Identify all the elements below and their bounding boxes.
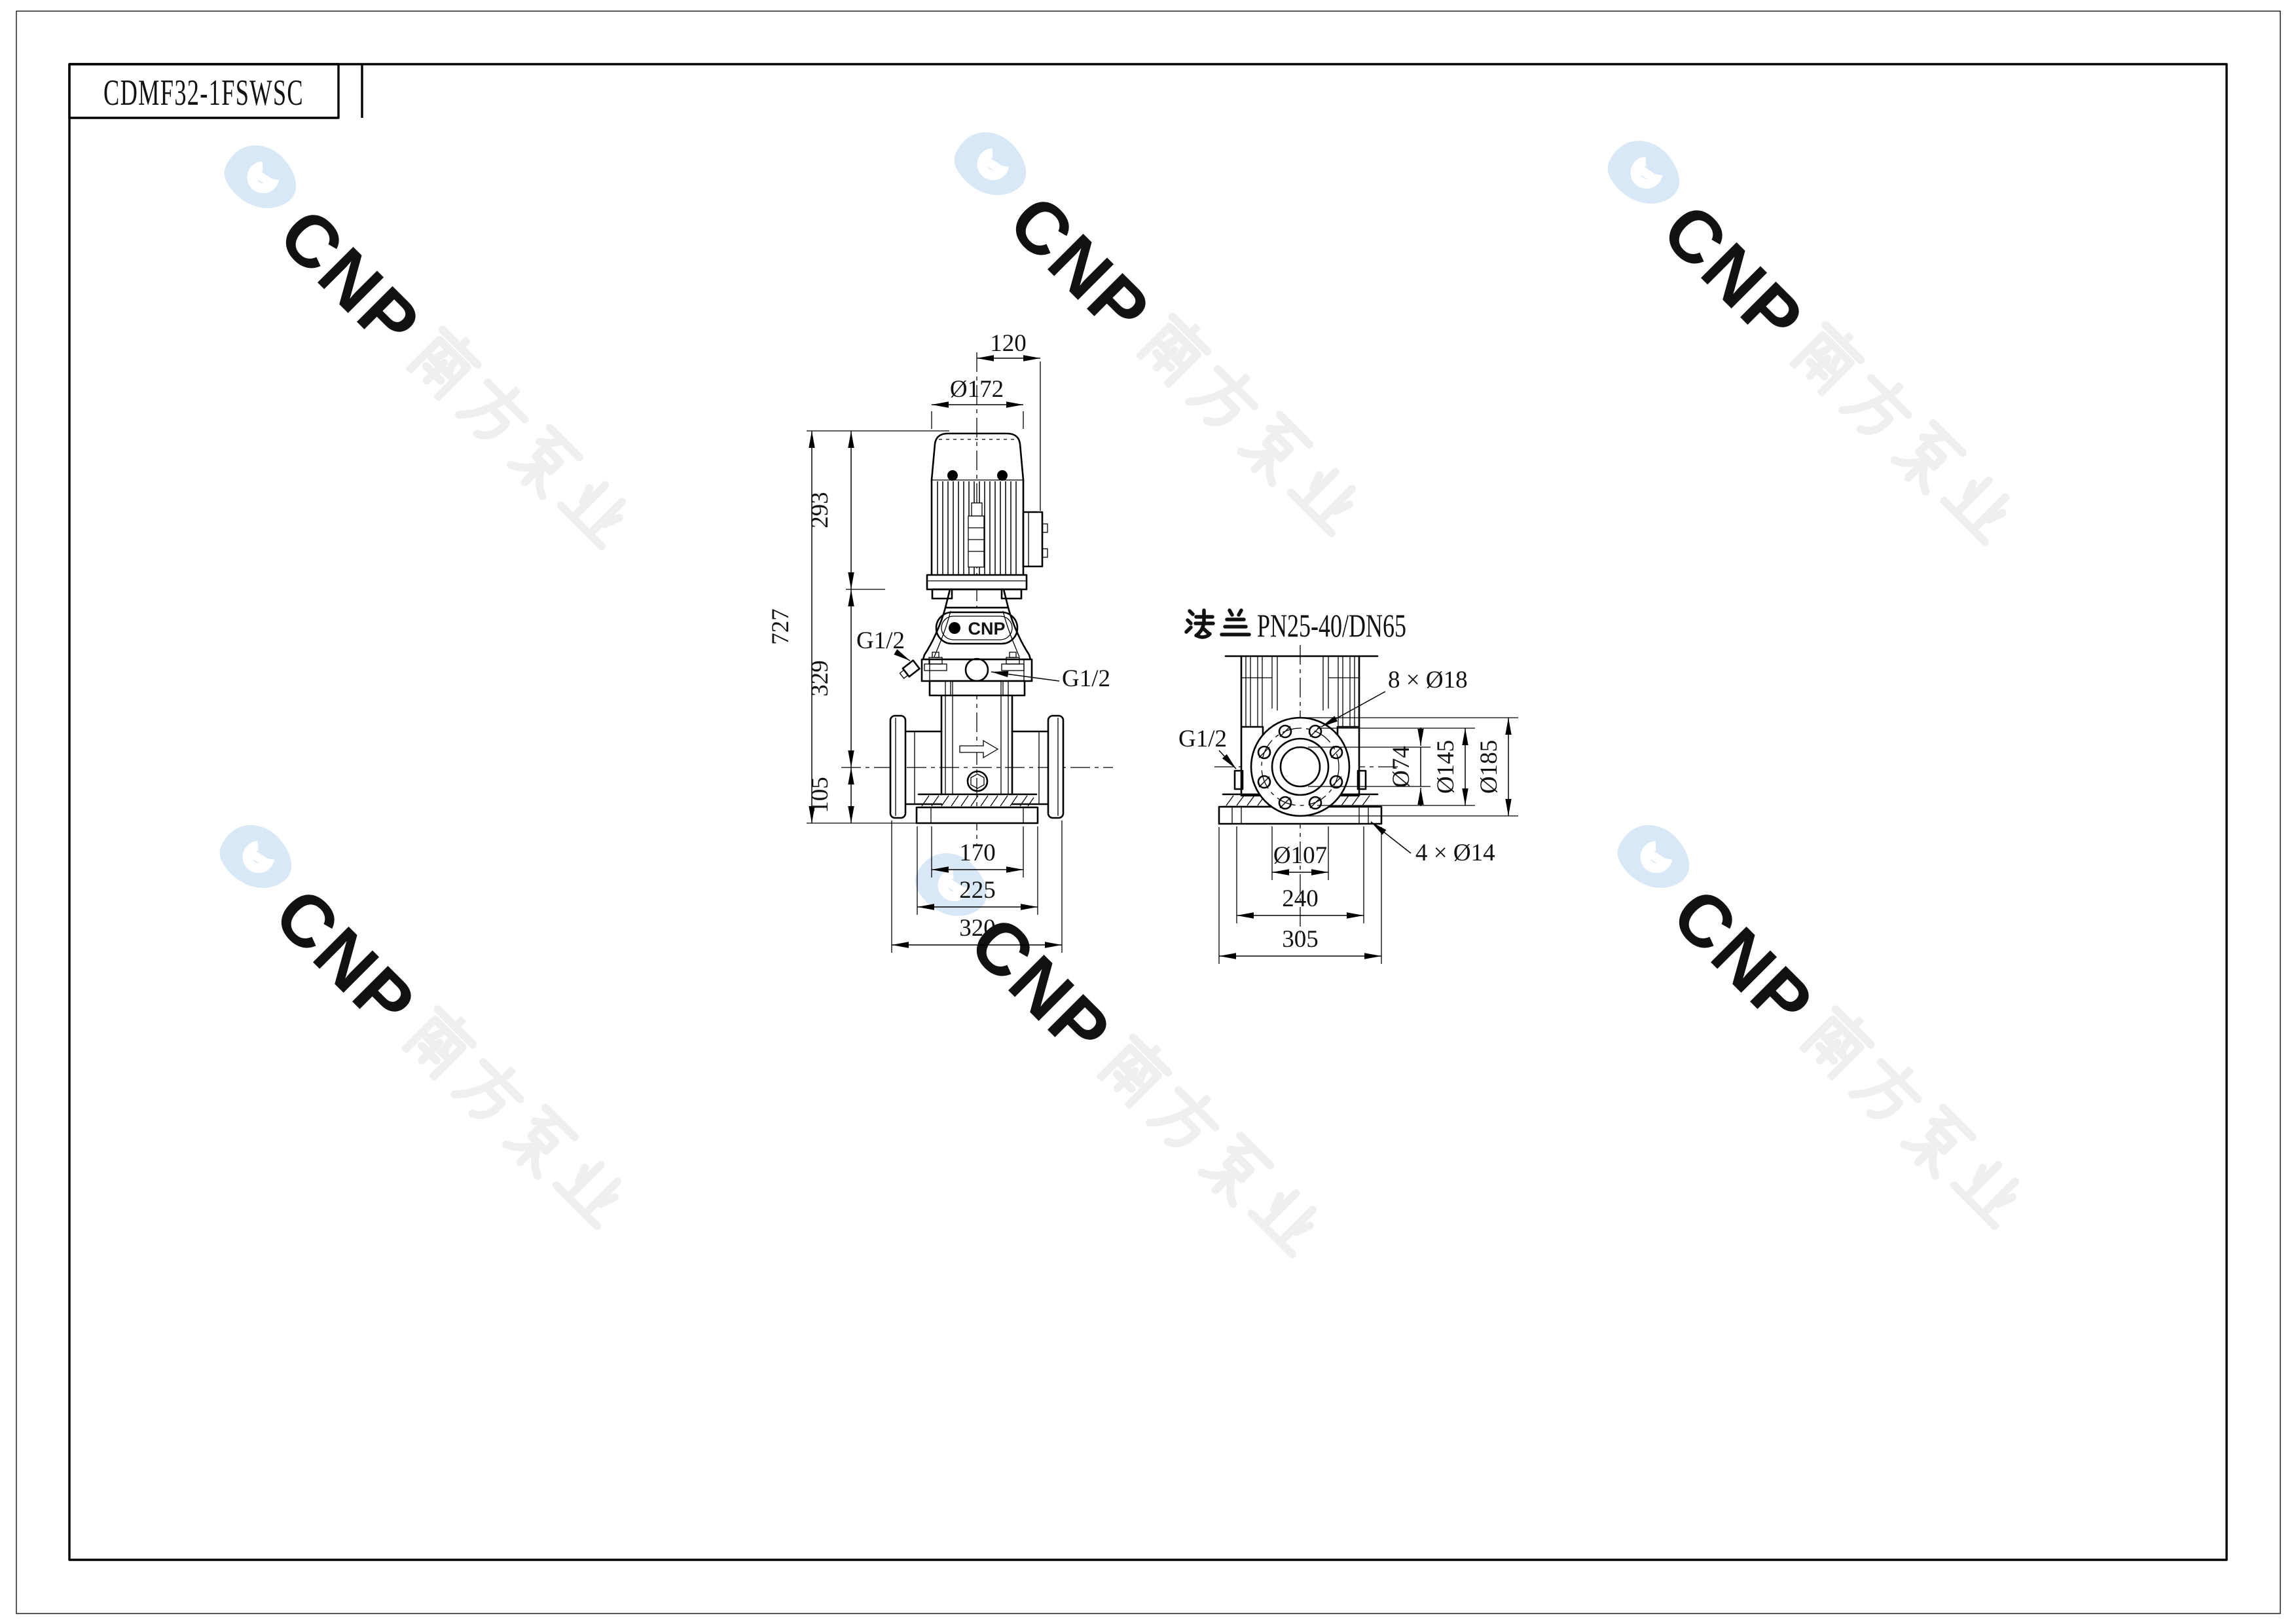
flange-title: PN25-40/DN65 xyxy=(1186,607,1406,644)
junction-box xyxy=(1023,512,1048,566)
drain-plug-fitting xyxy=(899,660,920,680)
watermark xyxy=(1584,125,2021,563)
base xyxy=(917,794,1038,823)
dim-225: 225 xyxy=(959,877,996,904)
side-port-label: G1/2 xyxy=(1178,726,1227,752)
dim-120: 120 xyxy=(990,330,1027,357)
dim-320: 320 xyxy=(959,915,996,942)
dim-170: 170 xyxy=(959,840,996,866)
dim-240: 240 xyxy=(1282,885,1319,912)
dim-bolt-circle: Ø145 xyxy=(1432,740,1459,794)
discharge-flange xyxy=(1048,716,1063,818)
motor-dome xyxy=(932,434,1023,481)
port-label-right: G1/2 xyxy=(1062,665,1110,692)
dim-raised-face: Ø107 xyxy=(1273,842,1327,869)
dim-329: 329 xyxy=(807,660,833,697)
flow-arrow-icon xyxy=(960,741,998,758)
dim-293: 293 xyxy=(807,492,833,528)
port-label-left: G1/2 xyxy=(856,627,905,654)
dim-flange-od: Ø185 xyxy=(1476,740,1503,794)
flange-face xyxy=(1251,718,1349,816)
flange-title-latin: PN25-40/DN65 xyxy=(1257,607,1406,644)
title-block: CDMF32-1FSWSC xyxy=(69,64,362,118)
dim-bore: Ø74 xyxy=(1388,746,1415,788)
drawing-sheet: CNP CDMF32-1FSWSC xyxy=(0,0,2296,1624)
badge-label: CNP xyxy=(968,619,1005,638)
watermark xyxy=(196,809,633,1247)
watermark xyxy=(1594,809,2031,1247)
badge-logo-icon xyxy=(949,622,960,634)
label-base-holes: 4 × Ø14 xyxy=(1415,840,1495,866)
dim-105: 105 xyxy=(807,777,833,813)
suction-flange xyxy=(890,716,905,818)
title-block-label: CDMF32-1FSWSC xyxy=(103,73,304,113)
pump-head: CNP xyxy=(923,608,1030,659)
side-dimensions-bottom: Ø107 240 305 xyxy=(1219,826,1381,964)
watermark xyxy=(891,838,1328,1275)
watermark-layer xyxy=(196,117,2031,1275)
dim-305: 305 xyxy=(1282,926,1319,953)
label-bolt-holes: 8 × Ø18 xyxy=(1388,667,1468,693)
side-view: PN25-40/DN65 xyxy=(1178,607,1518,964)
motor-fins xyxy=(932,480,1023,575)
watermark xyxy=(200,130,638,567)
dim-motor-dia: Ø172 xyxy=(950,376,1004,403)
flange-title-cn xyxy=(1186,610,1249,637)
dim-727: 727 xyxy=(767,608,794,645)
